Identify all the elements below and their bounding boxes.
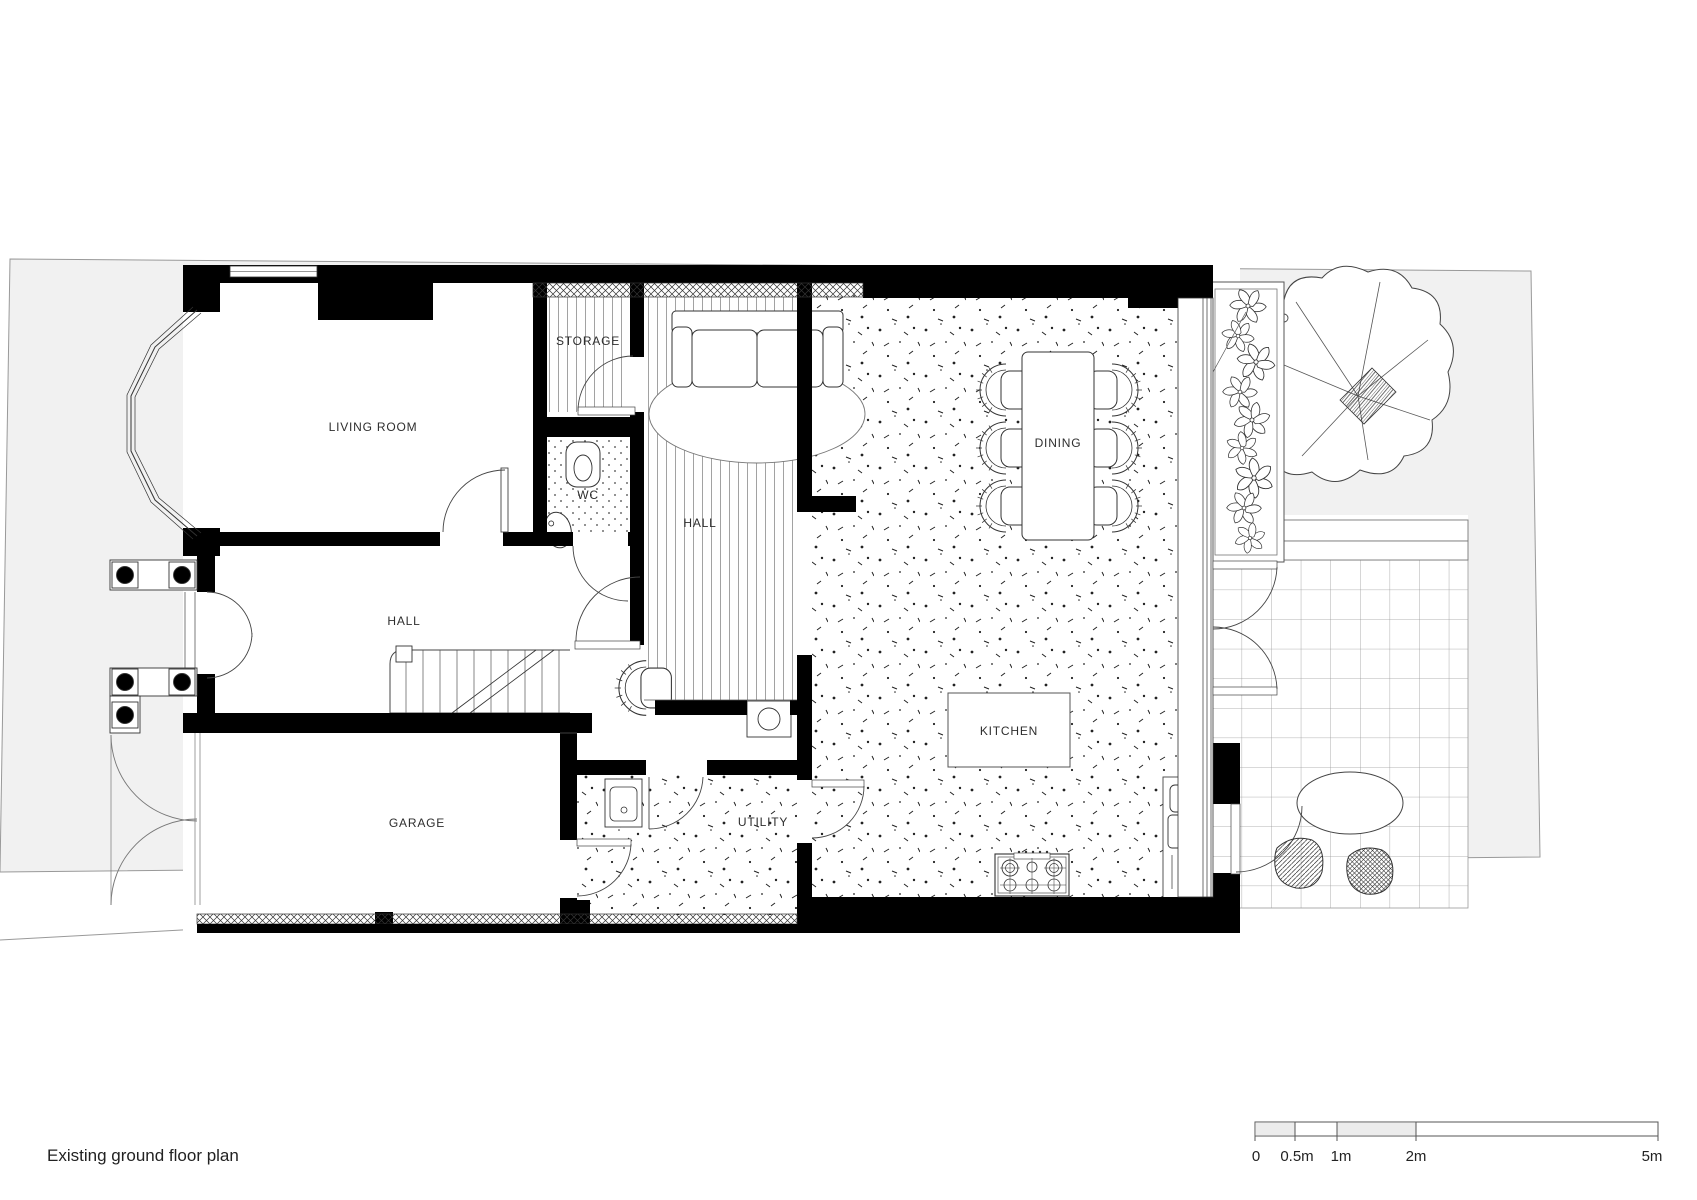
porch-column-icon <box>117 707 134 724</box>
porch-column-icon <box>117 567 134 584</box>
scale-label-1m: 1m <box>1331 1148 1352 1165</box>
scale-bar: 0 0.5m 1m 2m 5m <box>1252 1122 1663 1165</box>
scale-label-2m: 2m <box>1406 1148 1427 1165</box>
utility-label: UTILITY <box>738 815 788 829</box>
stove <box>747 701 791 737</box>
patio-tiles <box>1212 520 1468 908</box>
patio-table <box>1297 772 1403 834</box>
stair-newel <box>396 646 412 662</box>
scale-label-0: 0 <box>1252 1148 1260 1165</box>
floor-plan-drawing: LIVING ROOM STORAGE WC HALL HALL DINING … <box>0 0 1697 1200</box>
storage-label: STORAGE <box>556 334 620 348</box>
kitchen-label: KITCHEN <box>980 724 1038 738</box>
front-hall-label: HALL <box>387 614 420 628</box>
porch-column-icon <box>117 674 134 691</box>
sofa <box>672 311 843 387</box>
porch-column-icon <box>174 674 191 691</box>
utility-sink <box>605 779 642 827</box>
garage-label: GARAGE <box>389 816 445 830</box>
hob-icon <box>995 851 1069 896</box>
flower-bed <box>1208 282 1284 562</box>
scale-label-5m: 5m <box>1642 1148 1663 1165</box>
living-room-window <box>230 266 317 277</box>
drawing-caption: Existing ground floor plan <box>47 1146 239 1165</box>
porch-column-icon <box>174 567 191 584</box>
stairs <box>390 646 570 713</box>
dining-label: DINING <box>1035 436 1082 450</box>
wc-label: WC <box>577 488 599 502</box>
storage-floorboards <box>547 297 630 412</box>
wicker-stool-icon <box>1347 848 1393 894</box>
garden-glazed-wall <box>1178 298 1213 897</box>
rear-hall-label: HALL <box>683 516 716 530</box>
chimney-breast <box>318 283 433 320</box>
living-room-label: LIVING ROOM <box>329 420 418 434</box>
scale-label-05m: 0.5m <box>1280 1148 1313 1165</box>
wicker-stool-icon <box>1275 838 1323 888</box>
floor-plan-sheet: LIVING ROOM STORAGE WC HALL HALL DINING … <box>0 0 1697 1200</box>
